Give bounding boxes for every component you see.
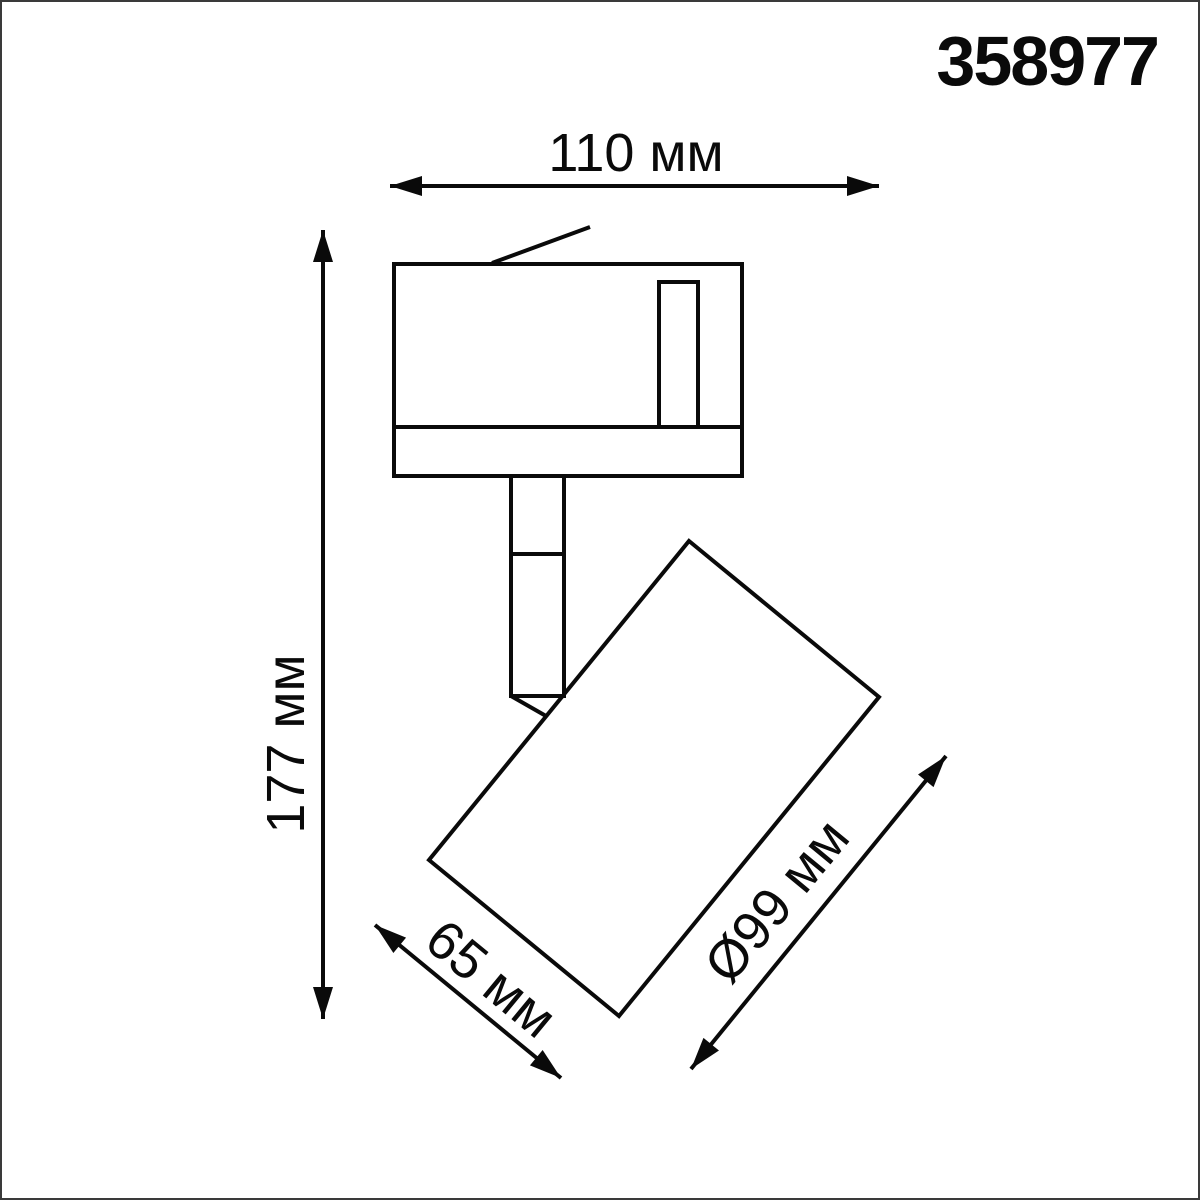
dimensional-drawing: 110 мм 177 мм 65 мм Ø99 мм bbox=[2, 2, 1200, 1200]
width-dimension-label: 110 мм bbox=[548, 123, 723, 183]
hinge-notch-line bbox=[511, 696, 546, 716]
adapter-lever-line bbox=[492, 227, 590, 263]
height-dimension-label: 177 мм bbox=[256, 654, 316, 833]
adapter-slot-outline bbox=[659, 282, 698, 427]
swivel-stem-outline bbox=[511, 476, 564, 696]
diagram-page: 358977 110 мм 177 мм 65 мм Ø99 мм bbox=[0, 0, 1200, 1200]
